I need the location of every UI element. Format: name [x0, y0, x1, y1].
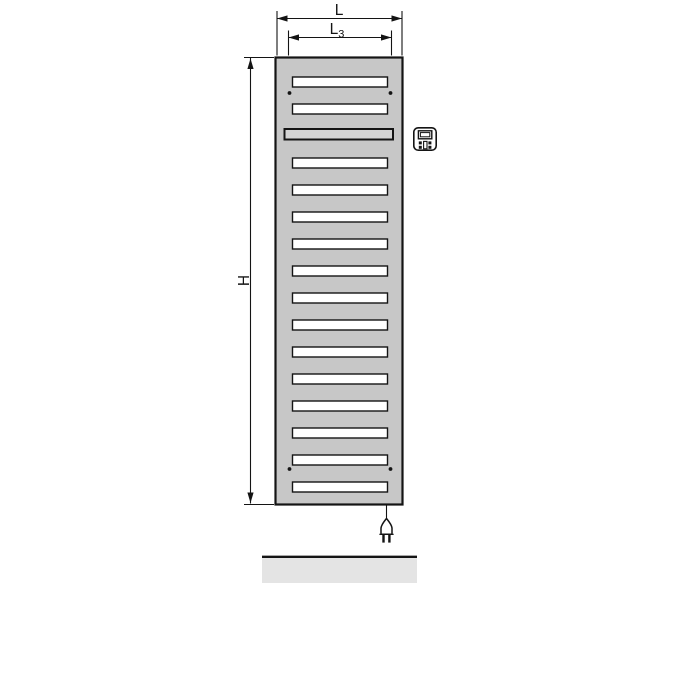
- arrowhead-left: [289, 34, 300, 40]
- radiator-slot: [293, 293, 388, 303]
- control-unit-button: [428, 141, 431, 144]
- control-unit-display-inner: [420, 133, 429, 137]
- radiator-slot-wide: [285, 129, 394, 140]
- dimension-slot-width: L3: [289, 21, 392, 56]
- dimension-label-L: L: [335, 2, 344, 19]
- floor-fill: [262, 557, 417, 583]
- arrowhead-bottom: [247, 493, 253, 504]
- power-plug-icon: [379, 506, 393, 543]
- control-unit-slider: [424, 141, 427, 148]
- dimension-overall-height: H: [236, 58, 274, 505]
- arrowhead-right: [392, 15, 403, 21]
- radiator-slot: [293, 482, 388, 492]
- radiator-slot: [293, 185, 388, 195]
- mounting-hole: [288, 467, 292, 471]
- radiator-slot: [293, 77, 388, 87]
- radiator-slot: [293, 104, 388, 114]
- floor-strip: [262, 557, 417, 583]
- arrowhead-top: [247, 59, 253, 70]
- control-unit-icon: [414, 128, 436, 150]
- radiator-slot: [293, 320, 388, 330]
- radiator-slot: [293, 212, 388, 222]
- mounting-hole: [389, 467, 393, 471]
- arrowhead-left: [277, 15, 288, 21]
- mounting-hole: [389, 91, 393, 95]
- plug-body: [381, 519, 392, 535]
- radiator-panel: [276, 58, 403, 505]
- control-unit-button: [428, 146, 431, 149]
- control-unit-button: [419, 146, 422, 149]
- radiator-slot: [293, 428, 388, 438]
- radiator-slot: [293, 266, 388, 276]
- plug-prong: [388, 535, 390, 543]
- radiator-slot: [293, 455, 388, 465]
- dimension-label-L3: L3: [330, 21, 345, 41]
- plug-prong: [382, 535, 384, 543]
- control-unit-button: [419, 141, 422, 144]
- radiator-slot: [293, 374, 388, 384]
- radiator-slot: [293, 239, 388, 249]
- radiator-slot: [293, 401, 388, 411]
- radiator-slot: [293, 347, 388, 357]
- radiator-dimension-drawing: L L3 H: [0, 0, 700, 700]
- arrowhead-right: [381, 34, 392, 40]
- mounting-hole: [288, 91, 292, 95]
- technical-drawing-canvas: L L3 H: [0, 0, 700, 700]
- dimension-label-H: H: [236, 275, 253, 286]
- radiator-slot: [293, 158, 388, 168]
